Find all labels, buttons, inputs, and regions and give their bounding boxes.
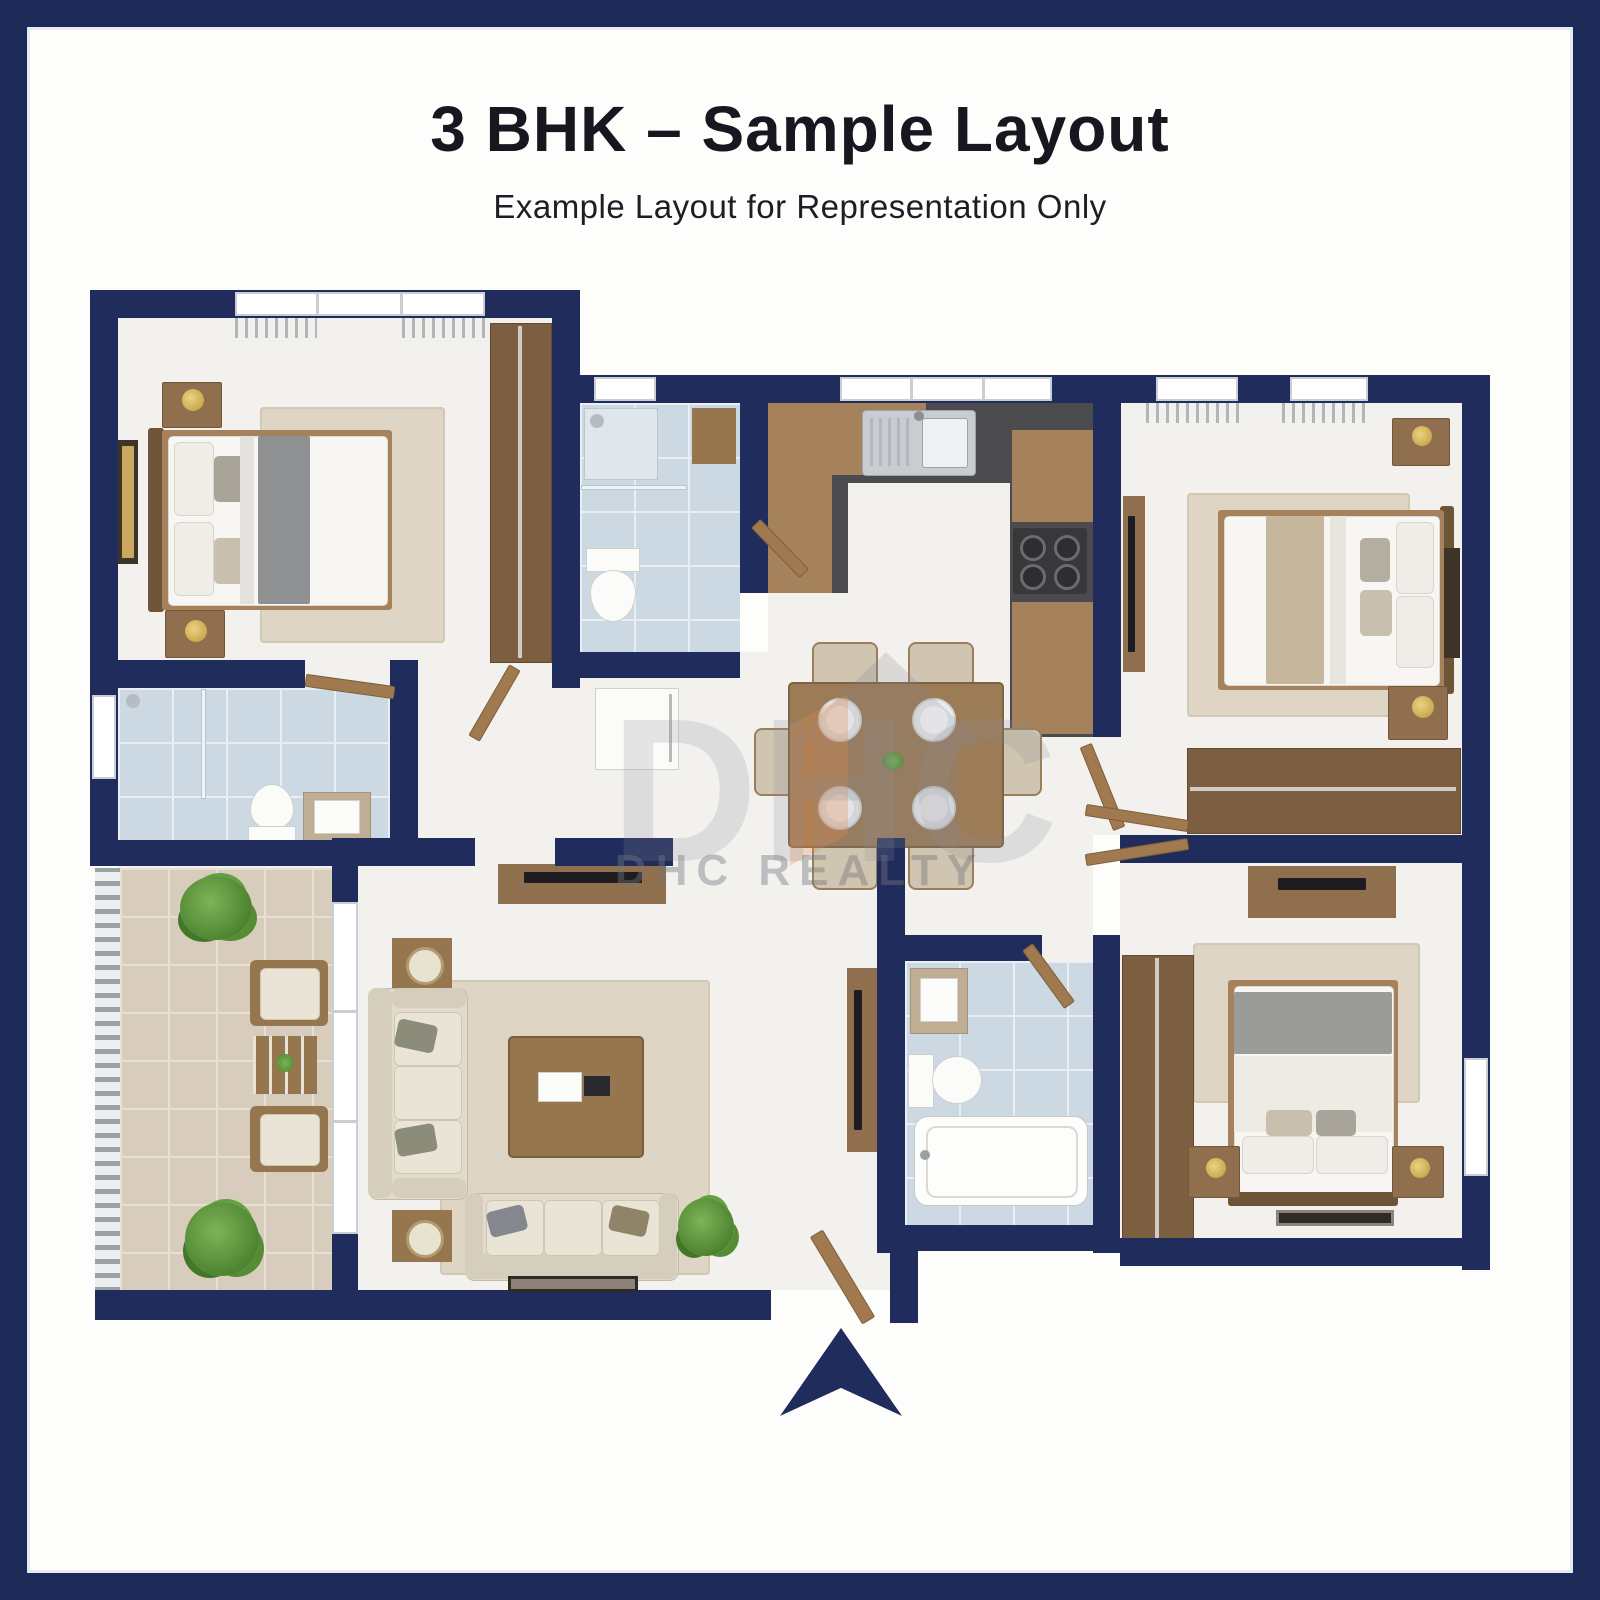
wall-bathroom3-top: [877, 935, 1042, 961]
bathroom1-sink: [314, 800, 360, 834]
wall-living-top-left: [332, 838, 475, 866]
balcony-armchair-cushion: [260, 1114, 320, 1166]
bedroom2-pillow: [1396, 522, 1434, 594]
stove-burner: [1054, 535, 1080, 561]
refrigerator: [595, 688, 679, 770]
bathroom2-glass-partition: [582, 486, 686, 489]
coffee-table-book: [584, 1076, 610, 1096]
bathroom2-toilet-tank: [586, 548, 640, 572]
bedroom2-lamp: [1412, 696, 1434, 718]
balcony-table-plant: [276, 1054, 294, 1072]
coffee-table-tray: [538, 1072, 582, 1102]
bedroom3-accent-pillow: [1266, 1110, 1312, 1136]
wall-bedroom3-bottom: [1120, 1238, 1490, 1266]
side-table-decor: [406, 1220, 444, 1258]
sofa-cushion: [394, 1066, 462, 1120]
bedroom3-pillow: [1242, 1136, 1314, 1174]
sofa-armrest: [392, 988, 466, 1008]
wall-bathroom3-left: [877, 838, 905, 1253]
bedroom2-pillow: [1396, 596, 1434, 668]
bathroom3-toilet-bowl: [932, 1056, 982, 1104]
wall-bathroom3-right: [1093, 935, 1120, 1253]
wall-bathroom2-bottom: [552, 652, 740, 678]
bedroom3-lamp: [1206, 1158, 1226, 1178]
wall-bathroom2-kitchen: [740, 375, 768, 593]
bedroom1-sheet-fold: [240, 436, 254, 604]
kitchen-faucet: [914, 411, 924, 421]
outside-patch-southeast: [1120, 1266, 1490, 1316]
bedroom3-dresser: [1248, 866, 1396, 918]
balcony-glass-door: [332, 902, 358, 1234]
wall-living-top-right: [555, 838, 673, 866]
bathroom3-sink: [920, 978, 958, 1022]
dining-plate: [818, 786, 862, 830]
bedroom2-wardrobe: [1187, 748, 1461, 834]
wall-kitchen-bedroom2: [1093, 375, 1121, 737]
bedroom3-pillow: [1316, 1136, 1388, 1174]
stove-burner: [1054, 564, 1080, 590]
living-tv-screen: [524, 872, 642, 883]
balcony-plant: [180, 876, 252, 940]
bedroom1-curtain: [402, 318, 485, 338]
bedroom3-tv-screen: [1278, 878, 1366, 890]
kitchen-sink-basin: [922, 418, 968, 468]
side-table-decor: [406, 947, 444, 985]
bedroom3-window: [1464, 1058, 1488, 1176]
sofa-cushion: [544, 1200, 602, 1256]
bathroom1-glass-partition: [202, 690, 205, 798]
bedroom2-accent-pillow: [1360, 590, 1392, 636]
wall-outer-left: [90, 290, 118, 866]
entrance-arrow-icon: [780, 1328, 902, 1416]
bedroom1-lamp: [185, 620, 207, 642]
bedroom2-beige-throw: [1266, 516, 1324, 684]
wall-bottom-left: [95, 1290, 771, 1320]
bedroom1-pillow: [174, 442, 214, 516]
kitchen-drainboard: [870, 418, 915, 466]
bedroom2-wall-art: [1444, 548, 1460, 658]
bedroom3-headboard: [1228, 1192, 1398, 1206]
window-mullion: [332, 1120, 358, 1123]
bathroom2-corner-shelf: [692, 408, 736, 464]
bedroom1-pillow: [174, 522, 214, 596]
bedroom2-curtain: [1146, 403, 1244, 423]
wall-balcony-stub-bottom: [332, 1234, 358, 1292]
floor-plan-poster: 3 BHK – Sample Layout Example Layout for…: [0, 0, 1600, 1600]
bedroom1-lamp: [182, 389, 204, 411]
bedroom2-accent-pillow: [1360, 538, 1390, 582]
bathroom1-window: [92, 695, 116, 779]
bedroom1-window: [235, 292, 485, 316]
page-subtitle: Example Layout for Representation Only: [0, 188, 1600, 226]
bathroom3-toilet-tank: [908, 1054, 934, 1108]
window-mullion: [910, 377, 913, 401]
floor-plan: DHC DHC REALTY: [90, 290, 1490, 1410]
stove-burner: [1020, 564, 1046, 590]
bedroom3-lamp: [1410, 1158, 1430, 1178]
bedroom3-floor-mat: [1276, 1210, 1394, 1226]
page-title: 3 BHK – Sample Layout: [0, 92, 1600, 166]
sofa-armrest: [659, 1193, 677, 1277]
balcony-plant: [185, 1202, 259, 1276]
living-tv-console: [847, 968, 879, 1152]
wall-bedroom1-bottom: [90, 660, 305, 688]
living-console-tv-screen: [854, 990, 862, 1130]
kitchen-cabinet-upper-right: [1012, 430, 1093, 522]
window-mullion: [982, 377, 985, 401]
dining-plate: [912, 698, 956, 742]
sofa-backrest: [368, 988, 392, 1198]
bedroom2-window: [1156, 377, 1238, 401]
bedroom1-wardrobe-rail: [518, 326, 522, 658]
bedroom2-window: [1290, 377, 1368, 401]
sofa-armrest: [465, 1193, 483, 1277]
window-mullion: [332, 1010, 358, 1013]
bedroom2-lamp: [1412, 426, 1432, 446]
wall-bathroom3-bottom: [877, 1225, 1120, 1251]
wall-balcony-stub-top: [332, 866, 358, 902]
kitchen-cabinet-lower-right: [1012, 602, 1093, 734]
bedroom2-sheet-fold: [1330, 516, 1346, 684]
window-mullion: [400, 292, 403, 316]
window-mullion: [316, 292, 319, 316]
bedroom2-tv-screen: [1128, 516, 1135, 652]
bedroom1-wall-art-canvas: [122, 446, 134, 558]
bathroom2-window: [594, 377, 656, 401]
dining-centerpiece: [882, 752, 904, 770]
outside-patch-south: [905, 1251, 1120, 1321]
living-tv-board: [498, 864, 666, 904]
bedroom3-accent-pillow: [1316, 1110, 1356, 1136]
bedroom3-gray-throw: [1234, 992, 1392, 1054]
balcony-railing: [95, 868, 120, 1292]
dining-plate: [818, 698, 862, 742]
living-door-mat: [508, 1276, 638, 1292]
sofa-armrest: [392, 1178, 466, 1198]
bedroom1-gray-throw: [258, 436, 310, 604]
bedroom3-wardrobe-rail: [1155, 958, 1159, 1240]
bedroom2-wardrobe-rail: [1190, 787, 1456, 791]
bathroom1-shower-head: [126, 694, 140, 708]
bedroom1-curtain: [235, 318, 317, 338]
wall-bathroom2-left: [552, 403, 580, 688]
bathroom3-bathtub-inner: [926, 1126, 1078, 1198]
refrigerator-handle: [669, 694, 672, 762]
kitchen-window: [840, 377, 1052, 401]
dining-plate: [912, 786, 956, 830]
bedroom2-curtain: [1282, 403, 1372, 423]
living-plant: [678, 1198, 734, 1256]
balcony-armchair-cushion: [260, 968, 320, 1020]
bathroom2-shower-head: [590, 414, 604, 428]
stove-burner: [1020, 535, 1046, 561]
bathroom3-tub-faucet: [920, 1150, 930, 1160]
bathroom1-toilet-bowl: [250, 784, 294, 830]
bedroom3-duvet: [1234, 1056, 1392, 1132]
